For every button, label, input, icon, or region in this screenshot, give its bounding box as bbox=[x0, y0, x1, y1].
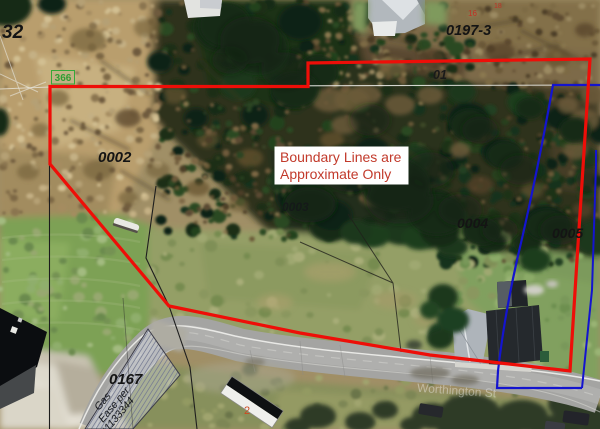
svg-text:0004: 0004 bbox=[457, 215, 488, 231]
svg-text:0197-3: 0197-3 bbox=[446, 23, 491, 39]
svg-text:0167: 0167 bbox=[109, 371, 143, 388]
svg-text:0003: 0003 bbox=[282, 200, 309, 214]
svg-text:Boundary Lines are: Boundary Lines are bbox=[280, 149, 402, 165]
svg-text:32: 32 bbox=[2, 22, 24, 43]
svg-text:0005: 0005 bbox=[552, 225, 583, 241]
svg-text:Approximate Only: Approximate Only bbox=[280, 166, 391, 182]
svg-text:16: 16 bbox=[468, 9, 477, 18]
svg-text:18: 18 bbox=[494, 3, 502, 10]
svg-text:366: 366 bbox=[55, 73, 72, 84]
svg-text:01: 01 bbox=[433, 68, 447, 82]
svg-text:0002: 0002 bbox=[98, 149, 132, 166]
svg-text:2: 2 bbox=[244, 405, 250, 417]
